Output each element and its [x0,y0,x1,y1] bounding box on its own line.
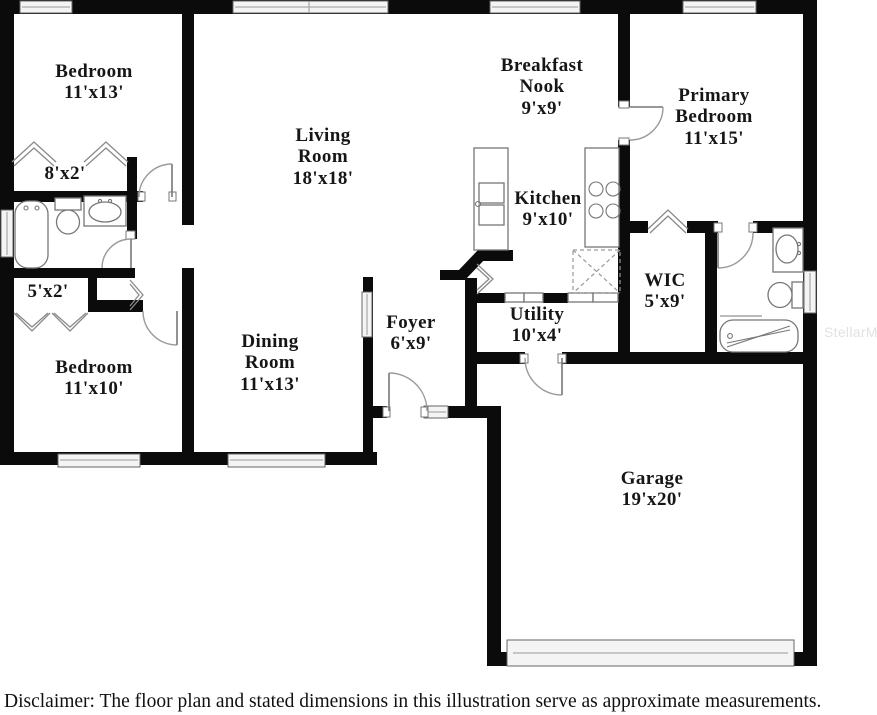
room-label-primary-bedroom: Primary Bedroom 11'x15' [675,85,752,149]
door-hall-bath [102,231,135,268]
door-front-entry [383,373,428,417]
room-dims: 18'x18' [293,168,354,189]
disclaimer-text: Disclaimer: The floor plan and stated di… [4,691,821,713]
room-label-wic: WIC 5'x9' [644,270,685,313]
room-dims: 5'x9' [644,291,685,312]
room-label-living-room: Living Room 18'x18' [293,125,354,189]
window-foyer-niche [362,292,372,337]
window-bedroom-top [20,1,72,13]
room-name: Room [293,146,354,167]
room-label-utility: Utility 10'x4' [510,304,565,347]
window-primary-bedroom [683,1,756,13]
room-dims: 11'x13' [55,82,132,103]
room-label-closet-hall: 5'x2' [27,281,68,302]
kitchen-counter-right [585,148,619,247]
room-name: Primary [675,85,752,106]
room-dims: 11'x15' [675,128,752,149]
floor-plan-page: Bedroom 11'x13' 8'x2' 5'x2' Bedroom 11'x… [0,0,877,715]
room-name: Foyer [386,312,435,333]
room-dims: 8'x2' [44,163,85,184]
room-name: Dining [240,331,300,352]
window-breakfast-nook [490,1,580,13]
room-name: Bedroom [55,357,132,378]
primary-sink-icon [773,228,803,272]
room-dims: 9'x9' [501,98,583,119]
room-name: Living [293,125,354,146]
primary-toilet-icon [768,282,803,308]
room-label-breakfast-nook: Breakfast Nook 9'x9' [501,55,583,119]
room-dims: 6'x9' [386,333,435,354]
garage-door [507,640,794,666]
door-primary-bedroom [619,101,663,145]
doors [102,101,757,417]
room-name: Nook [501,76,583,97]
window-living-room [233,1,388,13]
door-primary-bath [714,223,757,268]
bifold-wic [648,210,688,233]
window-bedroom-bottom [58,454,140,467]
window-primary-bath [804,271,816,313]
watermark: StellarMLS [824,324,877,340]
room-name: Breakfast [501,55,583,76]
bifold-kitchen-pass [477,264,493,294]
appliance-dashed-box [573,250,620,293]
primary-tub-icon [720,316,798,352]
room-name: Utility [510,304,565,325]
sink-icon [84,196,126,226]
room-dims: 10'x4' [510,325,565,346]
room-name: Garage [621,468,684,489]
room-label-kitchen: Kitchen 9'x10' [514,188,581,231]
window-dining-room [228,454,325,467]
room-label-garage: Garage 19'x20' [621,468,684,511]
room-name: Kitchen [514,188,581,209]
room-label-closet-top: 8'x2' [44,163,85,184]
door-bedroom-bottom [143,311,177,345]
bathtub-icon [15,201,48,268]
room-name: Bedroom [675,106,752,127]
room-label-bedroom-top: Bedroom 11'x13' [55,61,132,104]
room-dims: 9'x10' [514,209,581,230]
primary-bath-fixtures [720,228,803,352]
room-dims: 19'x20' [621,489,684,510]
door-utility-garage [520,354,566,395]
room-name: Bedroom [55,61,132,82]
toilet-icon [55,198,81,234]
window-hall-bath [1,210,13,257]
bifold-closet-hall [14,313,88,331]
room-label-bedroom-bottom: Bedroom 11'x10' [55,357,132,400]
room-label-foyer: Foyer 6'x9' [386,312,435,355]
hall-bath-fixtures [15,196,126,268]
room-dims: 5'x2' [27,281,68,302]
door-bedroom-top [138,164,176,201]
room-name: WIC [644,270,685,291]
room-label-dining-room: Dining Room 11'x13' [240,331,300,395]
room-name: Room [240,352,300,373]
room-dims: 11'x13' [240,374,300,395]
room-dims: 11'x10' [55,378,132,399]
